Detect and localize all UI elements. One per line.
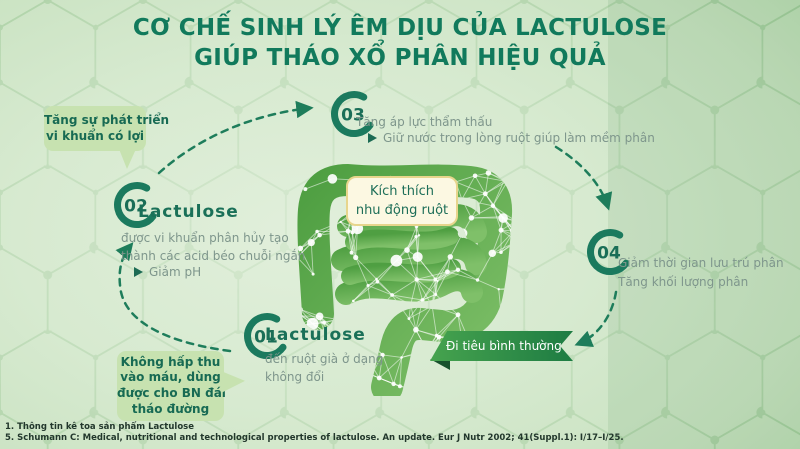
arrow-bullet-icon xyxy=(368,133,377,143)
step3-line1: Tăng áp lực thẩm thấu xyxy=(356,113,492,132)
arrow-bullet-icon xyxy=(134,267,143,277)
step2-line1: được vi khuẩn phân hủy tạo xyxy=(121,229,289,248)
page-title: CƠ CHẾ SINH LÝ ÊM DỊU CỦA LACTULOSE GIÚP… xyxy=(0,13,800,73)
step4-line1: Giảm thời gian lưu trú phân xyxy=(618,254,784,273)
infographic-canvas: CƠ CHẾ SINH LÝ ÊM DỊU CỦA LACTULOSE GIÚP… xyxy=(0,0,800,449)
title-line-2: GIÚP THÁO XỔ PHÂN HIỆU QUẢ xyxy=(0,43,800,73)
step2-heading: Lactulose xyxy=(138,202,239,222)
step2-line2: thành các acid béo chuỗi ngắn xyxy=(121,247,305,266)
peristalsis-label-box: Kích thích nhu động ruột xyxy=(346,176,458,226)
footnote-1: 1. Thông tin kê toa sản phẩm Lactulose xyxy=(5,422,194,432)
step2-bullet: Giảm pH xyxy=(134,265,201,279)
title-line-1: CƠ CHẾ SINH LÝ ÊM DỊU CỦA LACTULOSE xyxy=(0,13,800,43)
step1-line2: không đổi xyxy=(265,368,324,387)
footnote-2: 5. Schumann C: Medical, nutritional and … xyxy=(5,433,624,443)
normal-bowel-ribbon: Đi tiêu bình thường xyxy=(430,331,573,361)
step1-heading: Lactulose xyxy=(265,325,366,345)
callout-not-absorbed: Không hấp thu vào máu, dùng được cho BN … xyxy=(117,351,224,421)
step4-line2: Tăng khối lượng phân xyxy=(618,273,748,292)
callout-bacteria-growth: Tăng sự phát triển vi khuẩn có lợi xyxy=(44,106,146,151)
step1-line1: đến ruột già ở dạng xyxy=(265,350,383,369)
step3-bullet: Giữ nước trong lòng ruột giúp làm mềm ph… xyxy=(368,131,655,145)
